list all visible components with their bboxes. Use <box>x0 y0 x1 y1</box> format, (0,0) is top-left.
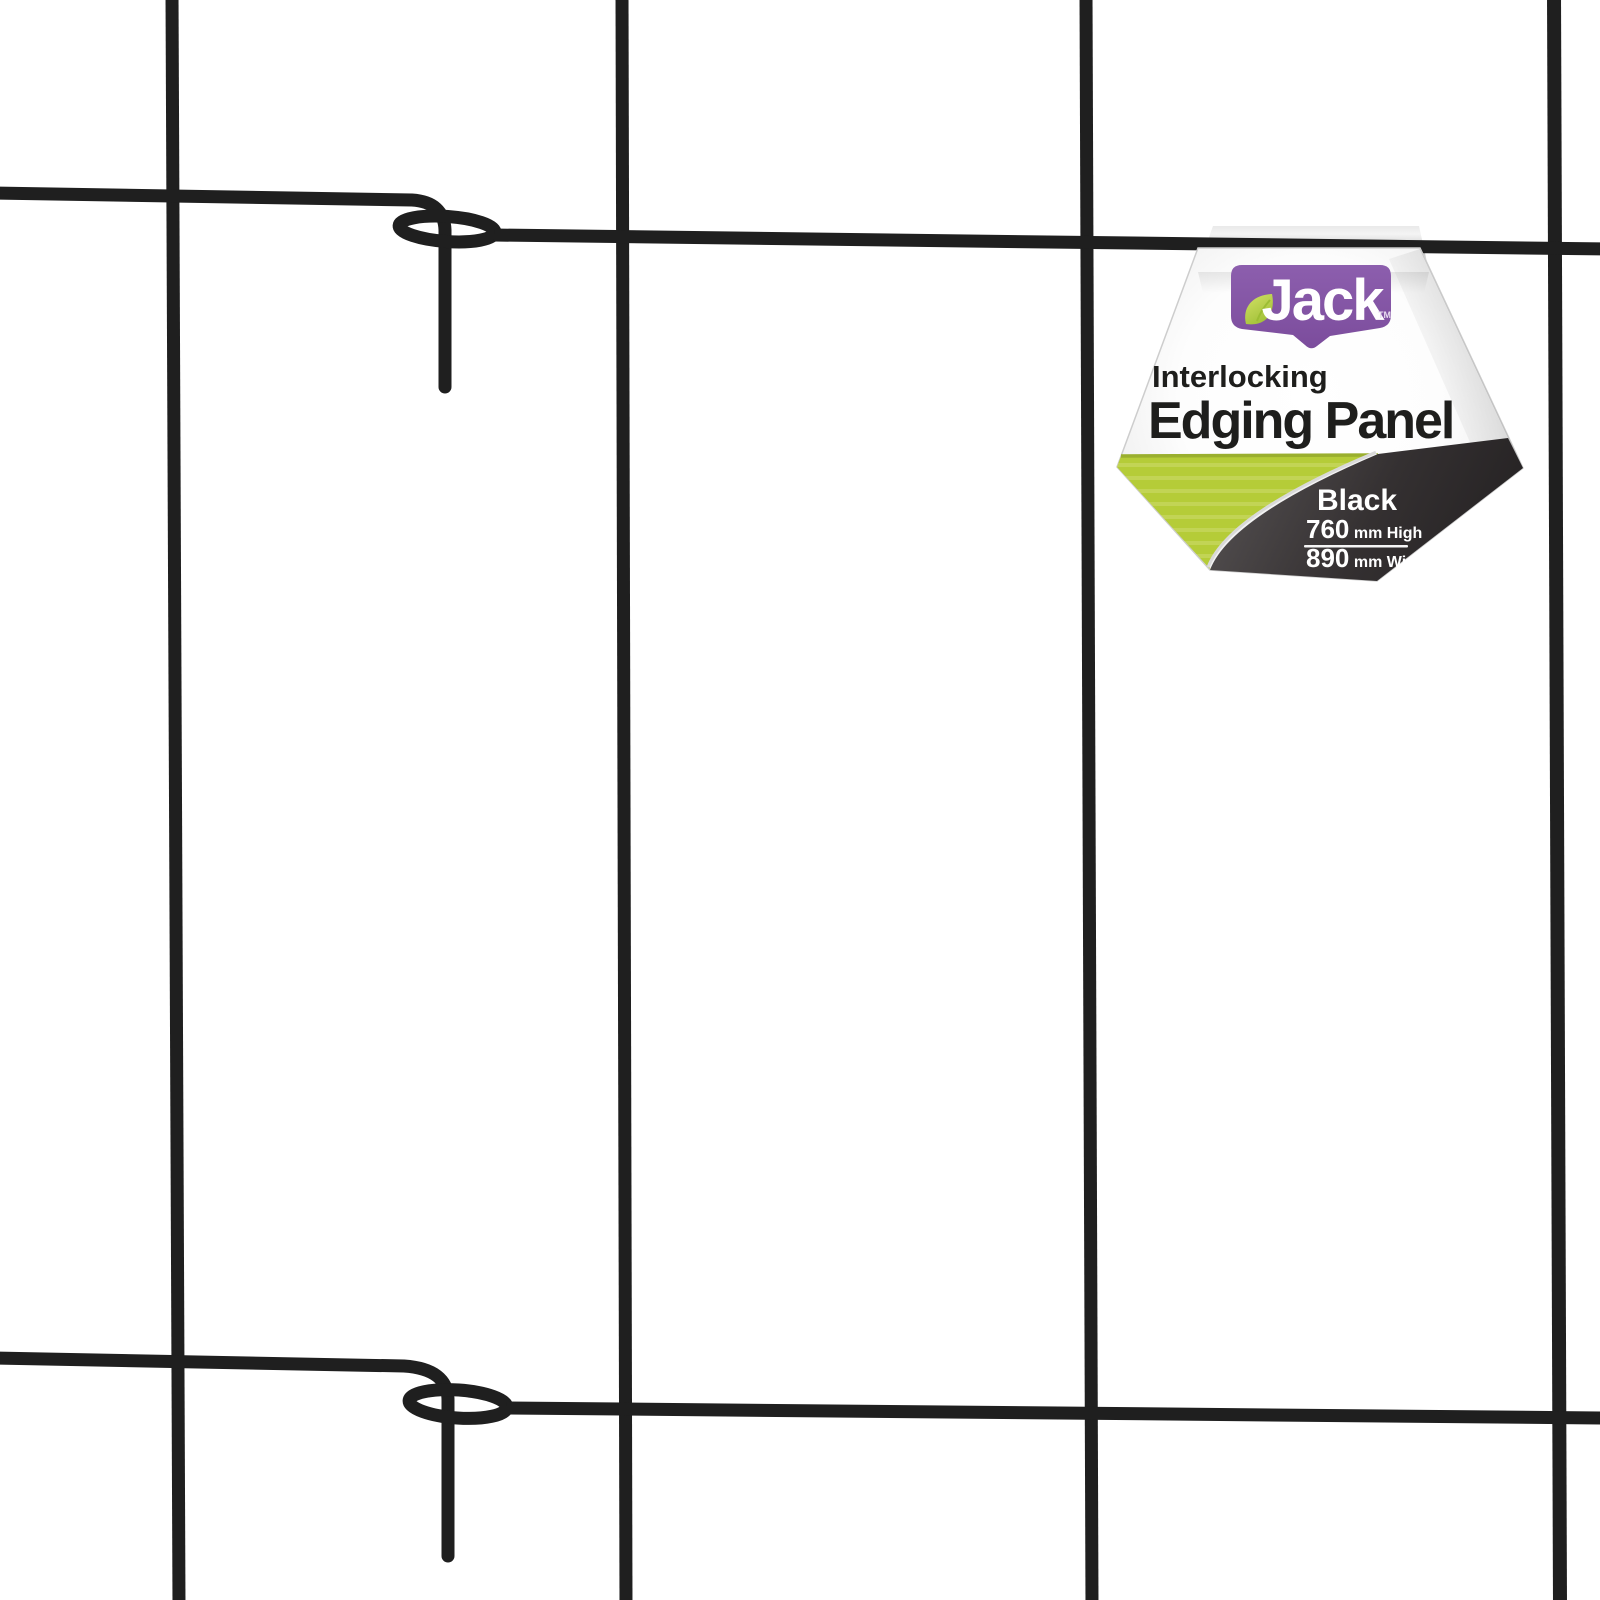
bottom-interlock-loop <box>408 1387 508 1422</box>
edging-panel-illustration: Jack TM Interlocking Edging Panel Black … <box>0 0 1600 1600</box>
top-right-horizontal-wire <box>494 235 1600 249</box>
brand-text: Jack <box>1261 268 1385 333</box>
width-value-text: 890 <box>1306 543 1349 573</box>
vertical-wire-4 <box>1554 0 1560 1600</box>
bottom-right-horizontal-wire <box>506 1408 1600 1418</box>
wire-mesh <box>0 0 1600 1600</box>
product-photo: Jack TM Interlocking Edging Panel Black … <box>0 0 1600 1600</box>
top-left-horizontal-wire-with-pin <box>0 193 445 387</box>
width-unit-text: mm Wide <box>1354 554 1425 571</box>
tag-green-top-edge <box>1121 455 1378 456</box>
height-value-text: 760 <box>1306 514 1349 544</box>
swing-tag: Jack TM Interlocking Edging Panel Black … <box>1117 248 1523 581</box>
title-text: Edging Panel <box>1148 392 1453 450</box>
height-unit-text: mm High <box>1354 525 1422 542</box>
subtitle-text: Interlocking <box>1152 359 1328 394</box>
color-name-text: Black <box>1317 484 1397 517</box>
bottom-left-horizontal-wire-with-pin <box>0 1358 448 1556</box>
trademark-text: TM <box>1378 310 1391 320</box>
